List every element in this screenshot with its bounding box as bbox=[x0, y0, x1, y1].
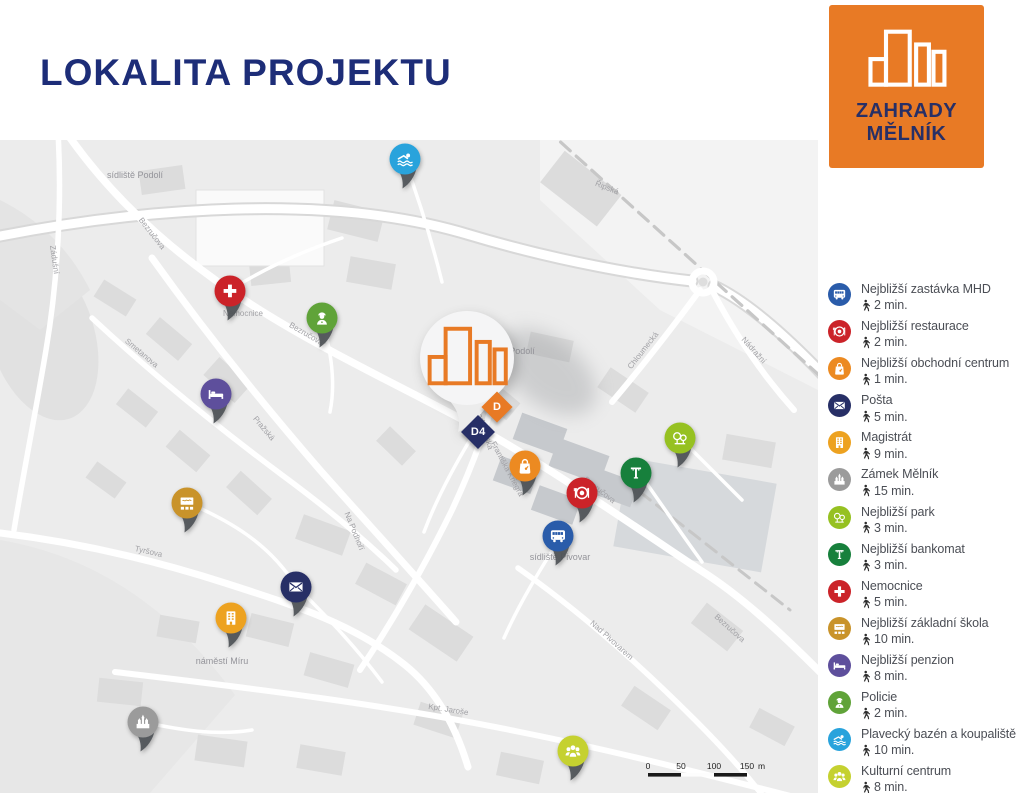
walk-icon bbox=[861, 596, 870, 609]
walk-icon bbox=[861, 336, 870, 349]
legend-label: Zámek Mělník bbox=[861, 466, 938, 482]
legend-label: Nejbližší restaurace bbox=[861, 318, 969, 334]
legend-label: Pošta bbox=[861, 392, 907, 408]
bus-icon bbox=[828, 283, 851, 306]
brand-line2: MĚLNÍK bbox=[867, 123, 947, 145]
walk-icon bbox=[861, 633, 870, 646]
map-pin-office-building bbox=[213, 602, 249, 650]
scale-tick: 0 bbox=[646, 761, 651, 771]
legend-item: Plavecký bazén a koupaliště 10 min. bbox=[828, 726, 1024, 759]
legend-walk-time: 5 min. bbox=[874, 594, 907, 610]
legend-item: Kulturní centrum 8 min. bbox=[828, 763, 1024, 793]
restaurant-icon bbox=[828, 320, 851, 343]
legend-walk-time: 10 min. bbox=[874, 742, 914, 758]
legend-walk-time: 8 min. bbox=[874, 668, 907, 684]
map-pin-restaurant bbox=[564, 477, 600, 525]
city-map: BezručovaBezručovaBezručovaBezručovaŘips… bbox=[0, 140, 818, 793]
legend-label: Nejbližší penzion bbox=[861, 652, 954, 668]
legend-item: Nejbližší základní škola 10 min. bbox=[828, 615, 1024, 648]
park-icon bbox=[828, 506, 851, 529]
walk-icon bbox=[861, 373, 870, 386]
map-pin-swimmer bbox=[387, 143, 423, 191]
scale-tick: 150 bbox=[740, 761, 754, 771]
legend-walk-time: 10 min. bbox=[874, 631, 914, 647]
legend-item: Nemocnice 5 min. bbox=[828, 578, 1024, 611]
shopping-bag-icon bbox=[828, 357, 851, 380]
legend-walk-time: 2 min. bbox=[874, 297, 907, 313]
atm-icon bbox=[828, 543, 851, 566]
legend-walk-time: 1 min. bbox=[874, 371, 907, 387]
map-pin-castle bbox=[125, 706, 161, 754]
walk-icon bbox=[861, 410, 870, 423]
legend-label: Nemocnice bbox=[861, 578, 923, 594]
legend-label: Plavecký bazén a koupaliště bbox=[861, 726, 1016, 742]
map-pin-bus bbox=[540, 520, 576, 568]
legend-item: Nejbližší bankomat 3 min. bbox=[828, 541, 1024, 574]
walk-icon bbox=[861, 670, 870, 683]
location-page: LOKALITA PROJEKTU ZAHRADY MĚLNÍK bbox=[0, 0, 1024, 793]
walk-icon bbox=[861, 484, 870, 497]
castle-icon bbox=[828, 468, 851, 491]
scale-unit: m bbox=[758, 761, 765, 771]
walk-icon bbox=[861, 299, 870, 312]
map-pin-police bbox=[304, 302, 340, 350]
legend-label: Magistrát bbox=[861, 429, 912, 445]
walk-icon bbox=[861, 744, 870, 757]
legend-item: Nejbližší penzion 8 min. bbox=[828, 652, 1024, 685]
legend-walk-time: 8 min. bbox=[874, 779, 907, 793]
legend-label: Nejbližší park bbox=[861, 504, 935, 520]
medical-cross-icon bbox=[828, 580, 851, 603]
legend-item: Magistrát 9 min. bbox=[828, 429, 1024, 462]
scale-tick: 100 bbox=[707, 761, 721, 771]
office-building-icon bbox=[828, 431, 851, 454]
people-icon bbox=[828, 765, 851, 788]
school-icon bbox=[828, 617, 851, 640]
map-legend: Nejbližší zastávka MHD 2 min. Nejbližší … bbox=[828, 281, 1024, 793]
legend-walk-time: 2 min. bbox=[874, 705, 907, 721]
legend-item: Nejbližší restaurace 2 min. bbox=[828, 318, 1024, 351]
police-icon bbox=[828, 691, 851, 714]
legend-walk-time: 9 min. bbox=[874, 446, 907, 462]
legend-walk-time: 3 min. bbox=[874, 557, 907, 573]
legend-item: Policie 2 min. bbox=[828, 689, 1024, 722]
brand-name: ZAHRADY MĚLNÍK bbox=[856, 100, 957, 145]
mail-icon bbox=[828, 394, 851, 417]
legend-walk-time: 2 min. bbox=[874, 334, 907, 350]
legend-label: Nejbližší bankomat bbox=[861, 541, 965, 557]
legend-label: Kulturní centrum bbox=[861, 763, 951, 779]
swimmer-icon bbox=[828, 728, 851, 751]
walk-icon bbox=[861, 707, 870, 720]
walk-icon bbox=[861, 781, 870, 793]
walk-icon bbox=[861, 521, 870, 534]
page-title: LOKALITA PROJEKTU bbox=[40, 52, 452, 94]
legend-item: Nejbližší park 3 min. bbox=[828, 504, 1024, 537]
map-pin-bed bbox=[198, 378, 234, 426]
map-pin-school bbox=[169, 487, 205, 535]
map-pin-park bbox=[662, 422, 698, 470]
brand-logo: ZAHRADY MĚLNÍK bbox=[829, 5, 984, 168]
legend-label: Nejbližší základní škola bbox=[861, 615, 989, 631]
scale-tick: 50 bbox=[676, 761, 686, 771]
map-pin-atm bbox=[618, 457, 654, 505]
street-label: náměstí Míru bbox=[196, 656, 249, 666]
walk-icon bbox=[861, 559, 870, 572]
legend-walk-time: 3 min. bbox=[874, 520, 907, 536]
map-pin-mail bbox=[278, 571, 314, 619]
legend-item: Nejbližší obchodní centrum 1 min. bbox=[828, 355, 1024, 388]
legend-walk-time: 15 min. bbox=[874, 483, 914, 499]
legend-label: Nejbližší obchodní centrum bbox=[861, 355, 1009, 371]
street-label: sídliště Podolí bbox=[107, 170, 164, 180]
legend-item: Nejbližší zastávka MHD 2 min. bbox=[828, 281, 1024, 314]
legend-label: Nejbližší zastávka MHD bbox=[861, 281, 991, 297]
buildings-icon bbox=[865, 28, 949, 92]
legend-walk-time: 5 min. bbox=[874, 409, 907, 425]
legend-item: Zámek Mělník 15 min. bbox=[828, 466, 1024, 499]
bed-icon bbox=[828, 654, 851, 677]
legend-label: Policie bbox=[861, 689, 907, 705]
walk-icon bbox=[861, 447, 870, 460]
brand-line1: ZAHRADY bbox=[856, 100, 957, 122]
map-pin-people bbox=[555, 735, 591, 783]
map-pin-medical-cross bbox=[212, 275, 248, 323]
map-pin-shopping-bag bbox=[507, 450, 543, 498]
legend-item: Pošta 5 min. bbox=[828, 392, 1024, 425]
